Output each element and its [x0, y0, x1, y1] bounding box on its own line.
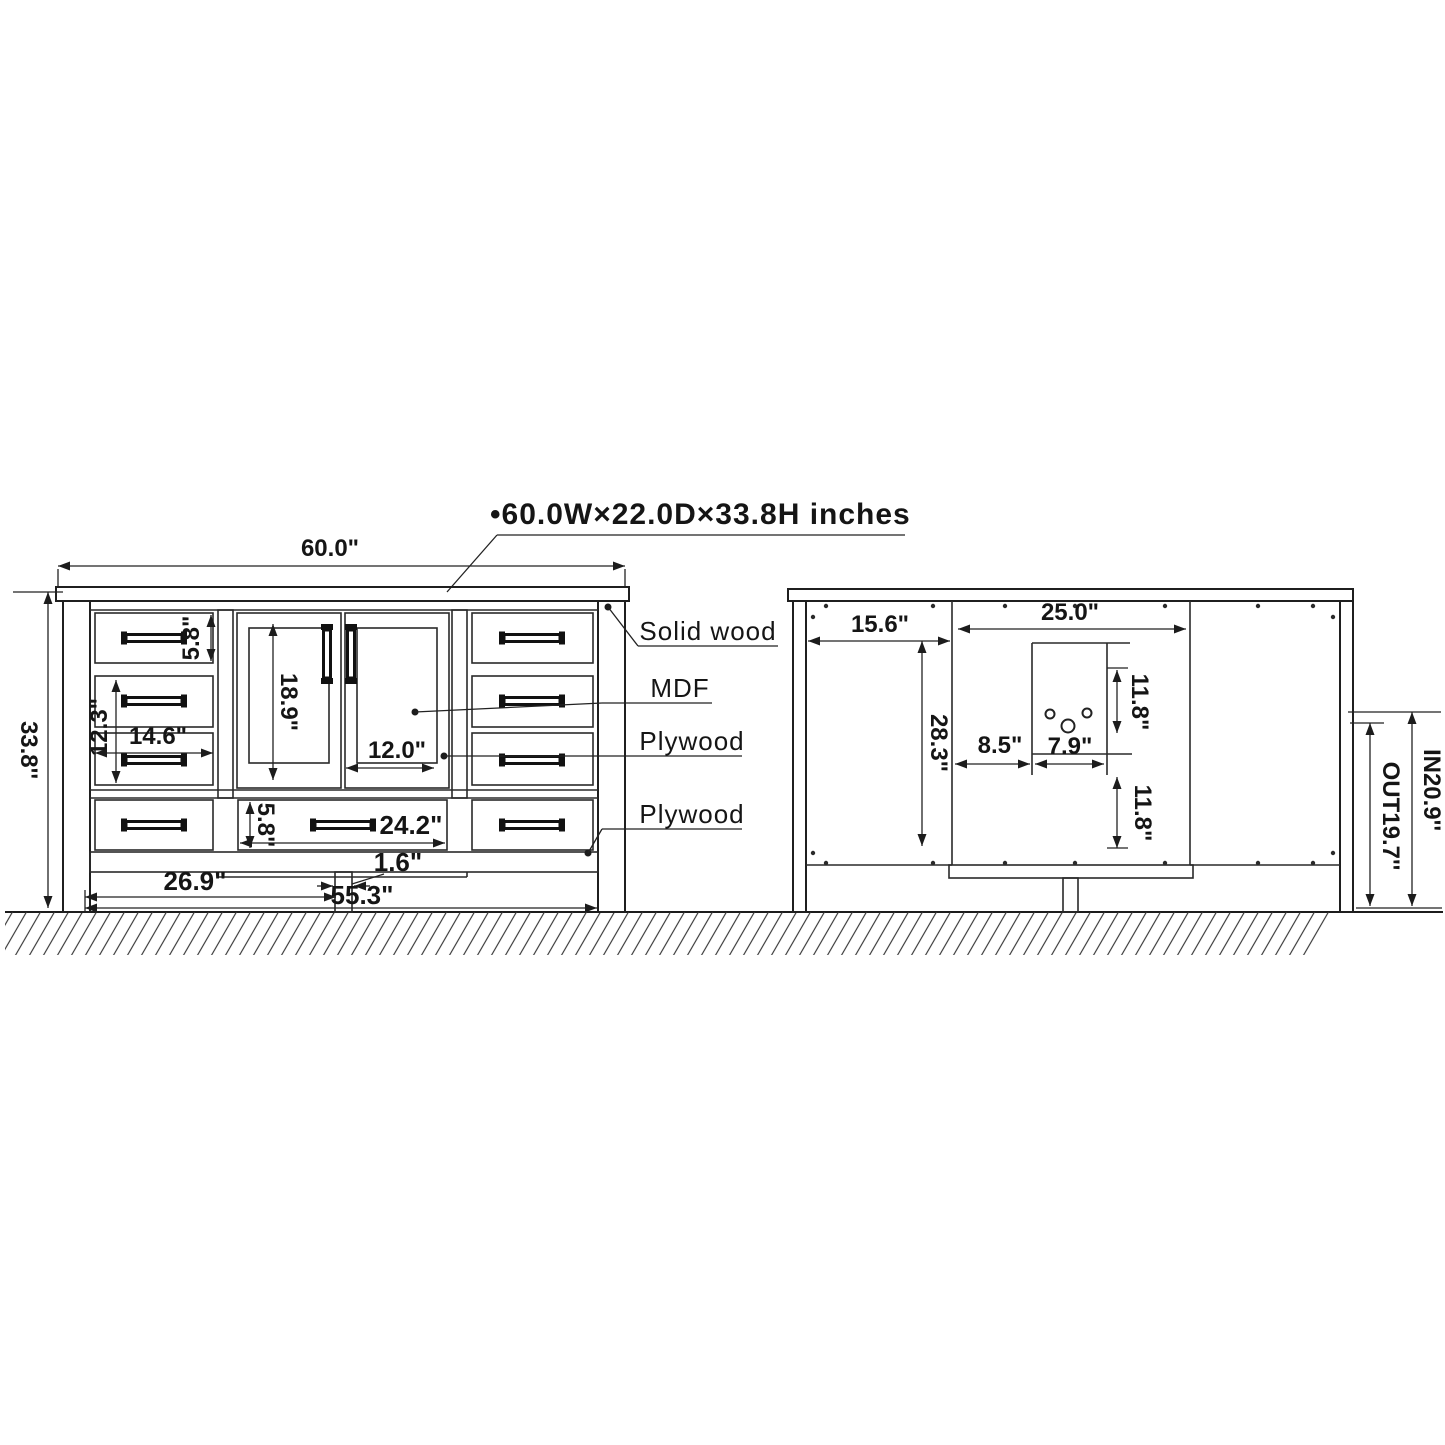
drawer-handle: [121, 695, 187, 708]
dim-side-panel-width: 15.6": [851, 611, 909, 638]
dim-drain-out: OUT19.7'': [1377, 762, 1404, 871]
front-view: 60.0" 33.8'' 5.8" 12.3" 14.6" 18.9" 12.0…: [13, 535, 778, 912]
right-drawer-column: [472, 613, 593, 850]
front-divider-left: [218, 610, 233, 798]
back-view: 15.6" 25.0" 28.3" 8.5" 7.9" 11.8" 11.8": [788, 589, 1445, 912]
overall-size-title: •60.0W×22.0D×33.8H inches: [490, 498, 911, 531]
dim-upper-clearance: 11.8": [1126, 674, 1153, 731]
dim-side-drawer-width: 14.6": [129, 723, 187, 750]
floor: [5, 912, 1443, 955]
dim-left-to-leg: 26.9": [164, 866, 227, 896]
faucet-hole-left: [1046, 710, 1055, 719]
dim-center-leg-width: 1.6": [374, 847, 422, 877]
leader-plywood-2: [588, 829, 602, 853]
back-left-leg: [793, 601, 806, 912]
front-divider-right: [452, 610, 467, 798]
title-leader-line: [447, 535, 497, 592]
back-right-leg: [1340, 601, 1353, 912]
dim-center-panel-width: 25.0": [1041, 599, 1099, 626]
drawer-handle: [310, 819, 376, 832]
title-block: •60.0W×22.0D×33.8H inches: [447, 498, 911, 592]
dim-bottom-drawer-height: 5.8": [252, 803, 279, 848]
front-dimensions: 60.0" 33.8'' 5.8" 12.3" 14.6" 18.9" 12.0…: [13, 535, 625, 911]
dim-side-drawer-stack: 12.3": [86, 698, 113, 756]
technical-drawing-page: •60.0W×22.0D×33.8H inches: [0, 0, 1445, 1445]
right-door-handle: [345, 624, 357, 684]
leader-solid-wood: [608, 607, 638, 646]
floor-hatch: [5, 912, 1338, 955]
dim-base-width: 55.3": [331, 880, 394, 910]
faucet-hole-right: [1083, 709, 1092, 718]
label-mdf: MDF: [650, 673, 709, 703]
dim-cutout-offset: 8.5": [978, 732, 1023, 759]
dim-cutout-width: 7.9": [1048, 733, 1093, 760]
dim-panel-height: 28.3": [925, 714, 952, 772]
dim-door-height: 18.9": [275, 673, 302, 731]
drawer-handle: [499, 819, 565, 832]
dim-lower-clearance: 11.8": [1129, 785, 1156, 842]
dim-total-width: 60.0": [301, 535, 359, 562]
back-center-leg: [1063, 878, 1078, 912]
label-plywood-1: Plywood: [639, 726, 744, 756]
dim-bottom-drawer-width: 24.2": [380, 810, 443, 840]
dim-drain-in: IN20.9'': [1418, 749, 1445, 831]
vanity-dimension-drawing: •60.0W×22.0D×33.8H inches: [0, 0, 1445, 1445]
label-solid-wood: Solid wood: [639, 616, 776, 646]
faucet-hole-center: [1062, 720, 1075, 733]
back-bottom-strip: [949, 865, 1193, 878]
drawer-handles: [121, 632, 565, 832]
label-plywood-2: Plywood: [639, 799, 744, 829]
dim-door-width: 12.0": [368, 737, 426, 764]
drawer-handle: [499, 632, 565, 645]
left-door-handle: [321, 624, 333, 684]
front-countertop: [56, 587, 629, 601]
dim-top-drawer-height: 5.8": [178, 616, 205, 661]
dim-total-height: 33.8'': [15, 721, 42, 779]
drawer-handle: [121, 754, 187, 767]
drawer-handle: [121, 819, 187, 832]
